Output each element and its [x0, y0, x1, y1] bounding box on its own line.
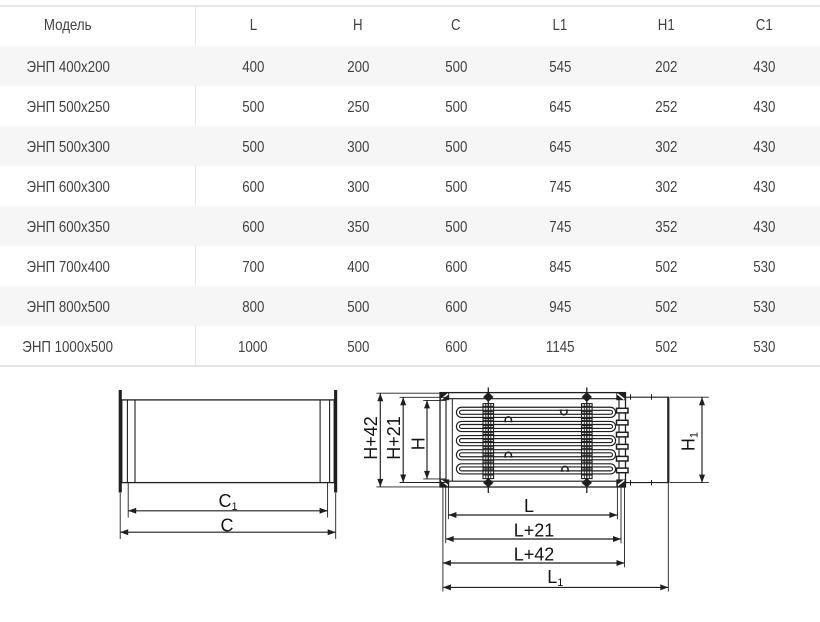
svg-text:L: L	[524, 496, 534, 516]
svg-text:L1: L1	[547, 567, 563, 589]
svg-text:C: C	[221, 516, 234, 536]
svg-text:H+42: H+42	[361, 416, 381, 460]
svg-text:L+21: L+21	[514, 521, 555, 541]
svg-text:H: H	[409, 437, 429, 450]
svg-text:C1: C1	[219, 491, 238, 513]
svg-text:H+21: H+21	[384, 416, 404, 460]
svg-text:H1: H1	[679, 432, 701, 451]
svg-text:L+42: L+42	[514, 545, 555, 565]
